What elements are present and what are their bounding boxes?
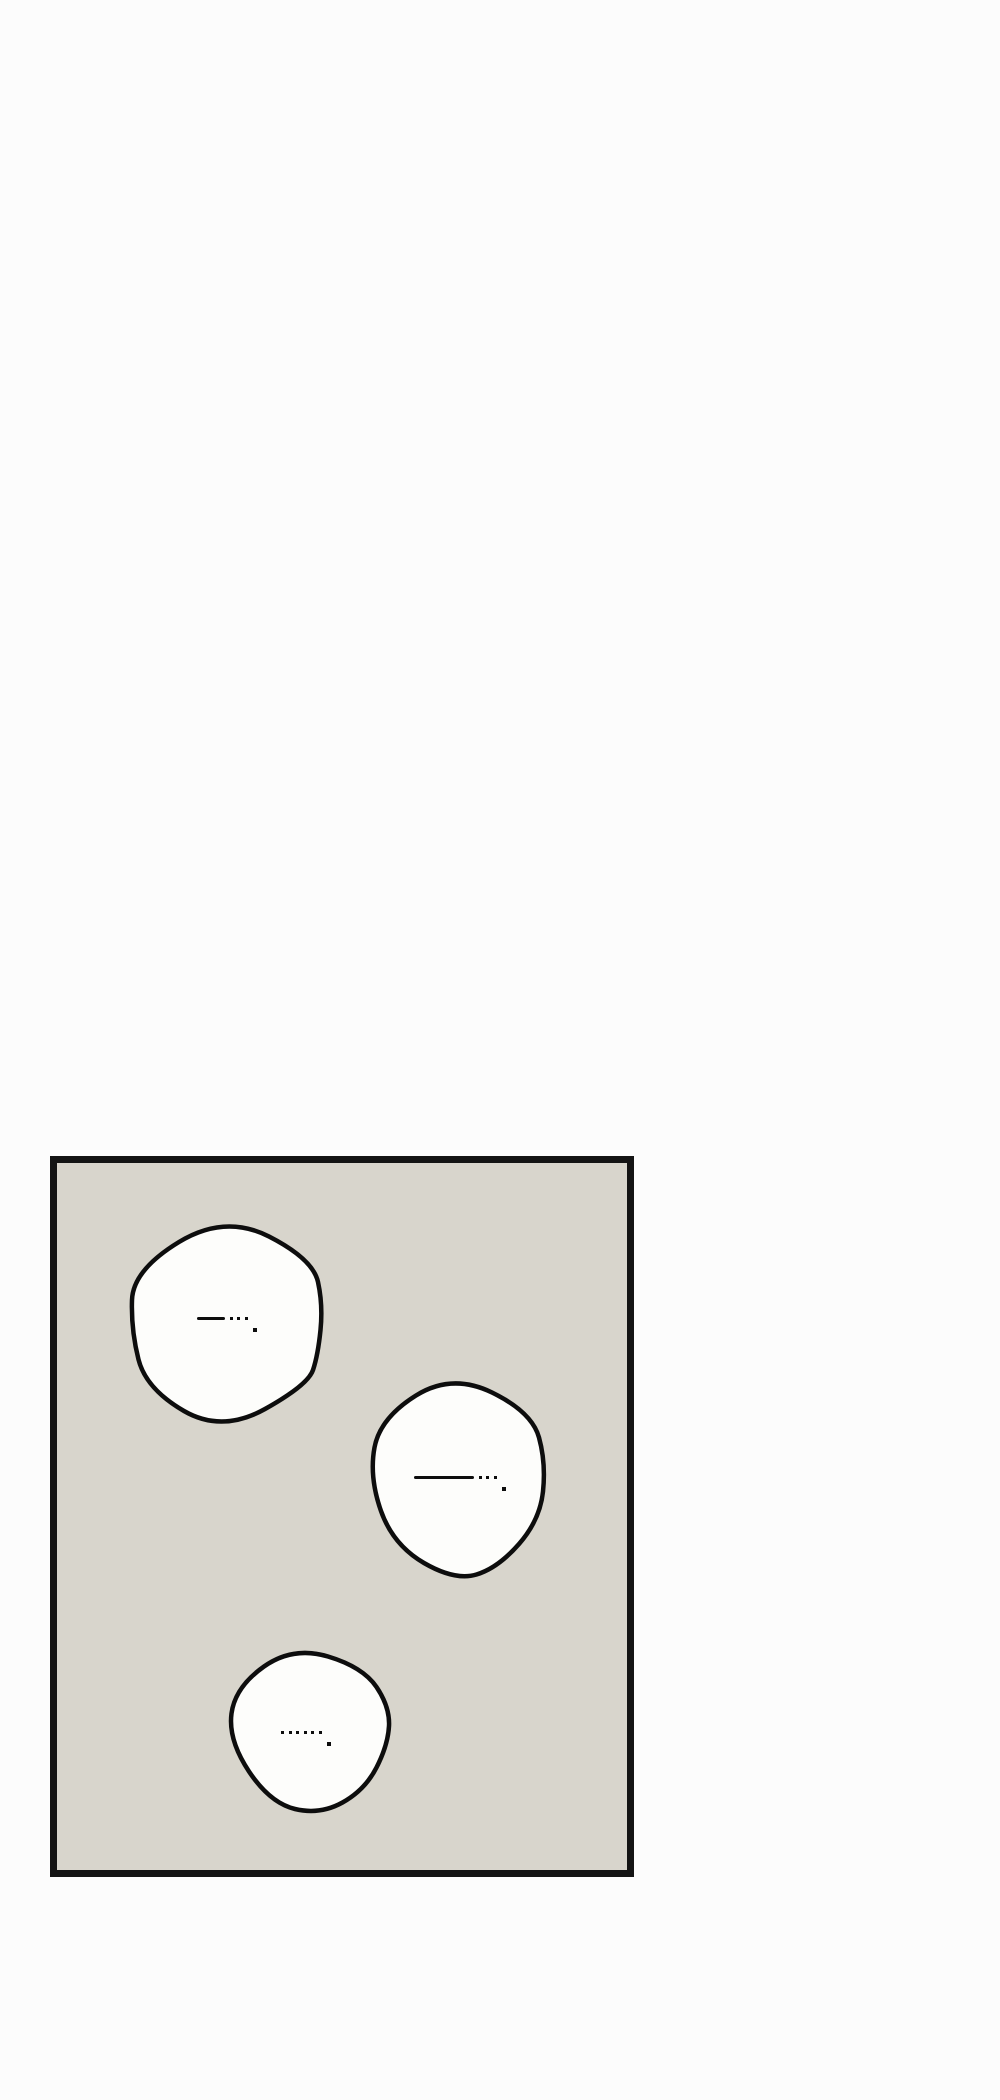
ellipsis-dot-mark [237,1317,240,1320]
period-mark [253,1328,257,1332]
ellipsis-dot-mark [479,1476,482,1479]
period-mark [502,1487,506,1491]
ellipsis-dot-mark [319,1731,322,1734]
period-mark [327,1742,331,1746]
comic-page [0,0,1000,2100]
ellipsis-dot-mark [311,1731,314,1734]
comic-panel [50,1156,634,1877]
speech-bubble-2 [368,1371,547,1583]
ellipsis-dot-mark [304,1731,307,1734]
speech-bubble-3-shape [224,1644,393,1818]
ellipsis-dot-mark [281,1731,284,1734]
speech-bubble-1-shape [130,1212,324,1434]
ellipsis-dot-mark [494,1476,497,1479]
ellipsis-dot-mark [245,1317,248,1320]
dash-mark [414,1476,474,1479]
bubble-outline [132,1226,321,1421]
ellipsis-dot-mark [486,1476,489,1479]
speech-bubble-1 [130,1212,324,1434]
ellipsis-dot-mark [296,1731,299,1734]
speech-bubble-3 [224,1644,393,1818]
dash-mark [197,1317,225,1320]
ellipsis-dot-mark [289,1731,292,1734]
ellipsis-dot-mark [230,1317,233,1320]
bubble-outline [373,1383,544,1576]
